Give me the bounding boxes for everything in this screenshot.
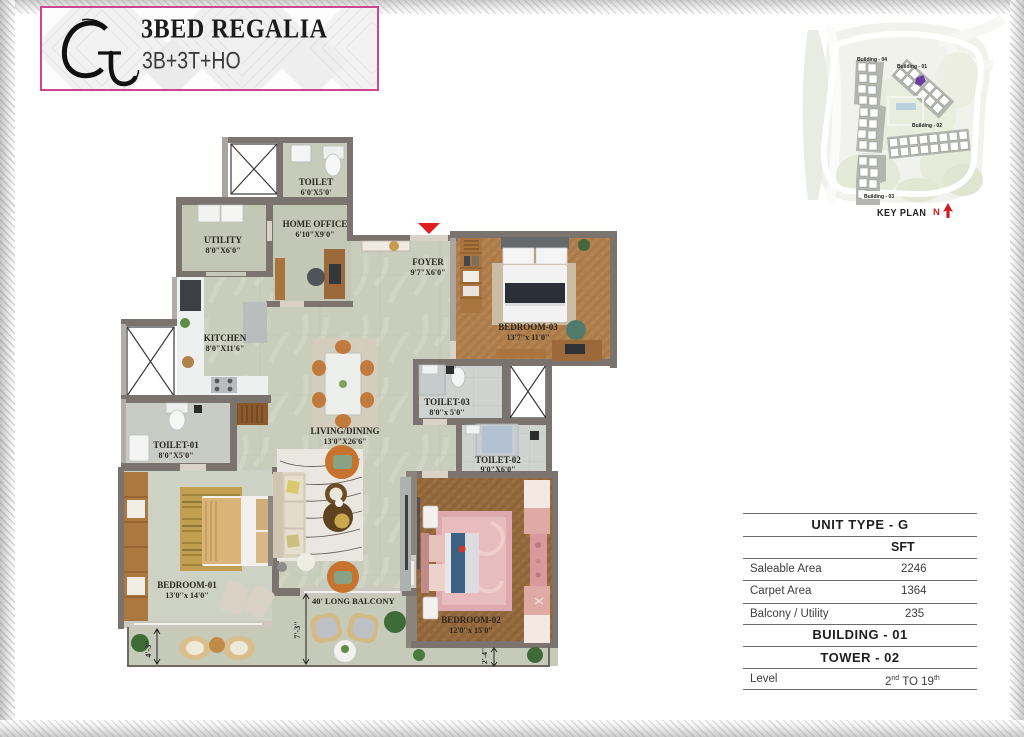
svg-text:Building - 01: Building - 01 [897,64,927,70]
svg-text:6'0'X5'0': 6'0'X5'0' [301,188,332,197]
svg-text:6'10"X9'0": 6'10"X9'0" [295,230,334,239]
svg-text:13'0''x 14'0'': 13'0''x 14'0'' [165,591,208,600]
svg-text:4'-3'': 4'-3'' [144,640,153,657]
svg-text:TOILET: TOILET [299,177,333,187]
svg-text:8'0''x 5'0'': 8'0''x 5'0'' [429,408,464,417]
svg-text:8'0"X5'0": 8'0"X5'0" [158,451,193,460]
svg-text:12'0''x 15'0'': 12'0''x 15'0'' [449,626,492,635]
svg-text:TOILET-02: TOILET-02 [475,455,521,465]
svg-text:FOYER: FOYER [412,257,444,267]
svg-text:Building - 02: Building - 02 [912,123,942,129]
svg-text:LIVING/DINING: LIVING/DINING [310,426,379,436]
svg-text:13'0"X26'6": 13'0"X26'6" [323,437,366,446]
svg-text:KITCHEN: KITCHEN [204,333,247,343]
svg-text:Building - 03: Building - 03 [864,194,894,200]
svg-text:40' LONG BALCONY: 40' LONG BALCONY [312,596,395,606]
svg-text:8'0"X11'6": 8'0"X11'6" [206,344,245,353]
svg-text:UTILITY: UTILITY [204,235,243,245]
svg-text:9'7"X6'0": 9'7"X6'0" [410,268,445,277]
svg-text:8'0"X6'0": 8'0"X6'0" [205,246,240,255]
svg-text:13'7''x 11'0'': 13'7''x 11'0'' [507,333,550,342]
svg-text:Building - 04: Building - 04 [857,57,887,63]
svg-text:BEDROOM-03: BEDROOM-03 [498,322,558,332]
svg-text:HOME OFFICE: HOME OFFICE [283,219,348,229]
svg-text:TOILET-01: TOILET-01 [153,440,199,450]
svg-text:BEDROOM-01: BEDROOM-01 [157,580,217,590]
svg-text:BEDROOM-02: BEDROOM-02 [441,615,501,625]
svg-text:TOILET-03: TOILET-03 [424,397,470,407]
svg-text:7'-3'': 7'-3'' [293,621,302,638]
svg-text:2'-4'': 2'-4'' [480,648,489,664]
svg-text:9'0"X6'0": 9'0"X6'0" [480,465,515,474]
